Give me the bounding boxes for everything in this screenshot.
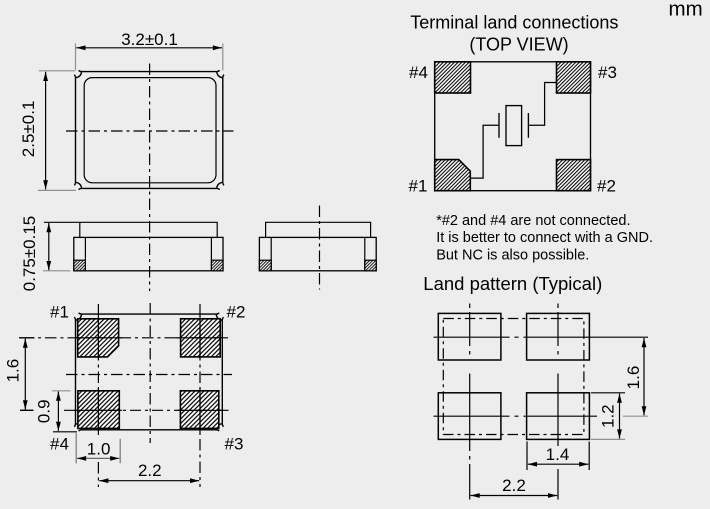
svg-text:2.2: 2.2	[502, 476, 526, 495]
svg-text:2.2: 2.2	[138, 461, 162, 480]
svg-text:#4: #4	[50, 434, 69, 453]
svg-text:3.2±0.1: 3.2±0.1	[121, 30, 178, 49]
svg-text:#4: #4	[409, 63, 428, 82]
svg-text:2.5±0.1: 2.5±0.1	[19, 101, 38, 158]
svg-text:#1: #1	[50, 303, 69, 322]
svg-text:It is better to connect with a: It is better to connect with a GND.	[436, 230, 653, 246]
svg-text:1.4: 1.4	[546, 445, 570, 464]
svg-text:#2: #2	[227, 303, 246, 322]
svg-text:Terminal land connections: Terminal land connections	[410, 13, 618, 33]
svg-text:1.6: 1.6	[4, 359, 23, 383]
svg-text:0.9: 0.9	[35, 399, 54, 423]
svg-text:1.0: 1.0	[87, 439, 111, 458]
svg-text:Land pattern (Typical): Land pattern (Typical)	[423, 273, 602, 294]
svg-text:(TOP VIEW): (TOP VIEW)	[469, 35, 568, 55]
svg-text:#3: #3	[598, 63, 617, 82]
svg-text:0.75±0.15: 0.75±0.15	[20, 216, 39, 292]
svg-text:#1: #1	[409, 176, 428, 195]
svg-text:#3: #3	[225, 434, 244, 453]
svg-text:But NC is also possible.: But NC is also possible.	[436, 247, 589, 263]
svg-text:1.2: 1.2	[599, 404, 618, 428]
svg-text:mm: mm	[669, 0, 703, 21]
svg-text:1.6: 1.6	[624, 366, 643, 390]
svg-text:*#2 and #4 are not connected.: *#2 and #4 are not connected.	[436, 213, 630, 229]
svg-text:#2: #2	[597, 176, 616, 195]
